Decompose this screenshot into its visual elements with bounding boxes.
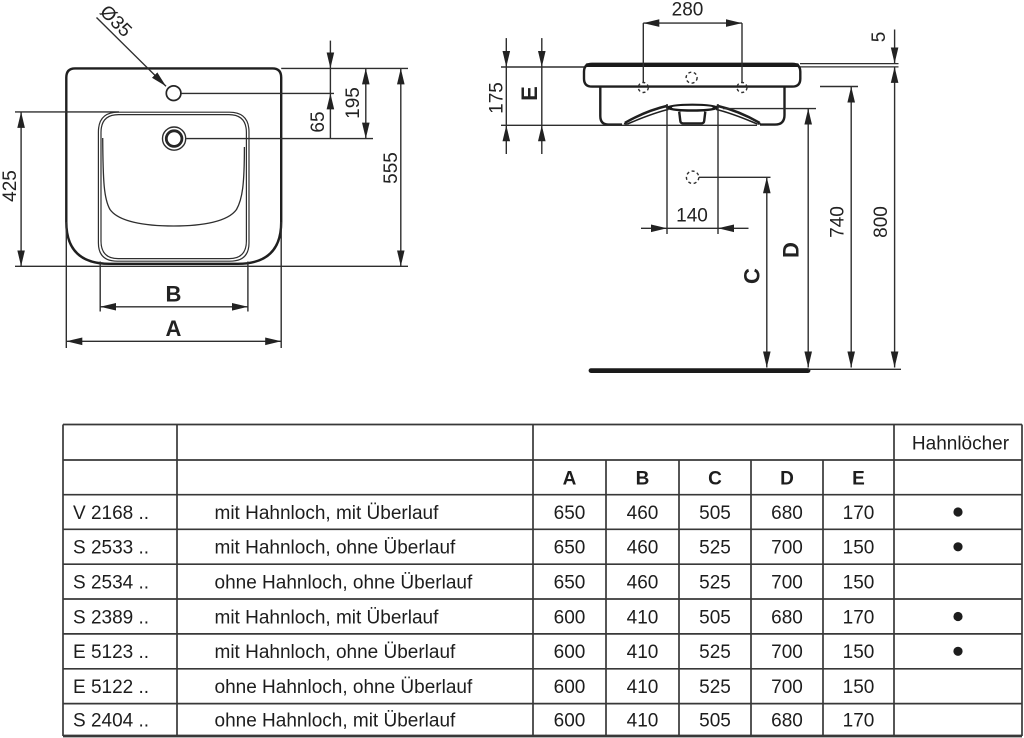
- svg-text:150: 150: [843, 642, 875, 663]
- svg-text:ohne Hahnloch, ohne Überlauf: ohne Hahnloch, ohne Überlauf: [215, 572, 473, 593]
- svg-text:150: 150: [843, 572, 875, 593]
- svg-text:680: 680: [771, 711, 803, 732]
- svg-text:425: 425: [0, 170, 21, 202]
- svg-text:S 2533 ..: S 2533 ..: [73, 538, 149, 559]
- svg-text:mit Hahnloch, mit Überlauf: mit Hahnloch, mit Überlauf: [215, 503, 440, 524]
- svg-text:460: 460: [627, 503, 659, 524]
- svg-text:680: 680: [771, 607, 803, 628]
- svg-text:600: 600: [554, 677, 586, 698]
- svg-text:150: 150: [843, 538, 875, 559]
- svg-text:555: 555: [381, 152, 402, 184]
- svg-text:460: 460: [627, 572, 659, 593]
- svg-text:S 2389 ..: S 2389 ..: [73, 607, 149, 628]
- svg-text:700: 700: [771, 572, 803, 593]
- svg-text:ohne Hahnloch, mit Überlauf: ohne Hahnloch, mit Überlauf: [215, 711, 457, 732]
- svg-text:525: 525: [699, 677, 731, 698]
- svg-text:150: 150: [843, 677, 875, 698]
- svg-text:170: 170: [843, 711, 875, 732]
- svg-text:S 2404 ..: S 2404 ..: [73, 711, 149, 732]
- svg-text:170: 170: [843, 607, 875, 628]
- svg-text:5: 5: [869, 32, 890, 43]
- svg-text:505: 505: [699, 711, 731, 732]
- svg-text:410: 410: [627, 642, 659, 663]
- svg-text:175: 175: [487, 82, 508, 114]
- svg-text:505: 505: [699, 607, 731, 628]
- svg-text:E 5123 ..: E 5123 ..: [73, 642, 149, 663]
- svg-text:650: 650: [554, 538, 586, 559]
- svg-text:C: C: [708, 469, 722, 490]
- svg-text:600: 600: [554, 642, 586, 663]
- svg-text:E: E: [517, 86, 542, 101]
- svg-text:C: C: [740, 268, 765, 284]
- svg-text:700: 700: [771, 642, 803, 663]
- svg-text:B: B: [166, 282, 182, 307]
- svg-text:600: 600: [554, 711, 586, 732]
- svg-text:mit Hahnloch, ohne Überlauf: mit Hahnloch, ohne Überlauf: [215, 642, 457, 663]
- svg-text:410: 410: [627, 677, 659, 698]
- svg-text:460: 460: [627, 538, 659, 559]
- svg-text:600: 600: [554, 607, 586, 628]
- svg-text:Hahnlöcher: Hahnlöcher: [912, 434, 1010, 455]
- svg-text:505: 505: [699, 503, 731, 524]
- svg-text:mit Hahnloch, ohne Überlauf: mit Hahnloch, ohne Überlauf: [215, 538, 457, 559]
- svg-text:800: 800: [871, 206, 892, 238]
- svg-text:525: 525: [699, 572, 731, 593]
- svg-text:650: 650: [554, 572, 586, 593]
- svg-text:410: 410: [627, 711, 659, 732]
- svg-text:B: B: [636, 469, 650, 490]
- svg-text:740: 740: [827, 206, 848, 238]
- svg-text:140: 140: [676, 206, 708, 227]
- svg-text:650: 650: [554, 503, 586, 524]
- svg-text:195: 195: [343, 87, 364, 119]
- svg-text:170: 170: [843, 503, 875, 524]
- svg-text:280: 280: [672, 0, 704, 21]
- svg-text:700: 700: [771, 677, 803, 698]
- svg-text:E 5122 ..: E 5122 ..: [73, 677, 149, 698]
- svg-text:V 2168 ..: V 2168 ..: [73, 503, 149, 524]
- svg-text:mit Hahnloch, mit Überlauf: mit Hahnloch, mit Überlauf: [215, 607, 440, 628]
- svg-text:700: 700: [771, 538, 803, 559]
- svg-text:525: 525: [699, 538, 731, 559]
- svg-text:680: 680: [771, 503, 803, 524]
- svg-text:D: D: [779, 242, 804, 258]
- svg-text:D: D: [780, 469, 794, 490]
- svg-text:A: A: [166, 316, 182, 341]
- svg-text:E: E: [852, 469, 865, 490]
- svg-text:S 2534 ..: S 2534 ..: [73, 572, 149, 593]
- svg-text:525: 525: [699, 642, 731, 663]
- svg-text:410: 410: [627, 607, 659, 628]
- svg-text:A: A: [563, 469, 577, 490]
- svg-text:ohne Hahnloch, ohne Überlauf: ohne Hahnloch, ohne Überlauf: [215, 677, 473, 698]
- svg-text:65: 65: [308, 111, 329, 132]
